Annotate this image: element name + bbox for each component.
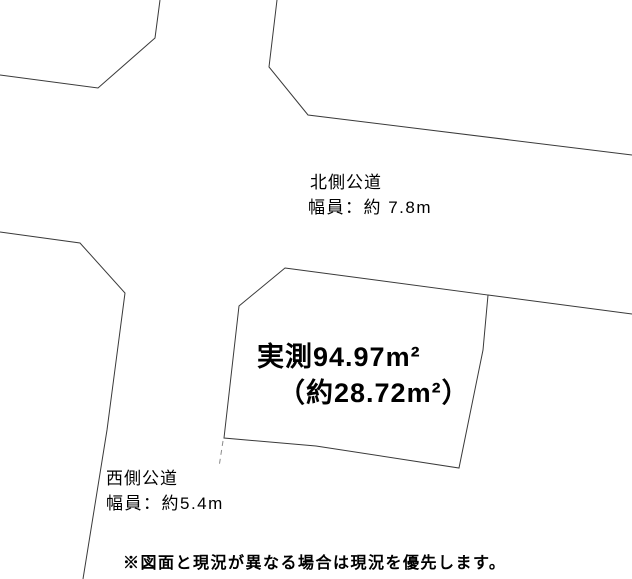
plot-diagram-root: 北側公道 幅員：約 7.8m 実測94.97m² （約28.72m²） 西側公道… xyxy=(0,0,632,579)
disclaimer-note: ※図面と現況が異なる場合は現況を優先します。 xyxy=(123,549,506,573)
parcel-measured-area: 実測94.97m² xyxy=(257,339,470,375)
north-road-label: 北側公道 幅員：約 7.8m xyxy=(308,170,432,220)
parcel-area-label: 実測94.97m² （約28.72m²） xyxy=(257,339,470,411)
plot-lines-svg xyxy=(0,0,632,579)
west-road-label: 西側公道 幅員：約5.4m xyxy=(106,466,224,516)
northeast-block-boundary xyxy=(269,0,632,155)
north-road-width: 幅員：約 7.8m xyxy=(308,195,432,220)
north-road-south-edge xyxy=(488,295,632,314)
north-road-name: 北側公道 xyxy=(310,170,432,195)
northwest-block-boundary xyxy=(0,0,160,88)
west-road-width: 幅員：約5.4m xyxy=(106,491,224,516)
west-road-east-edge-extension xyxy=(219,441,223,467)
southwest-block-boundary xyxy=(0,232,125,579)
parcel-approx-area: （約28.72m²） xyxy=(278,375,470,411)
west-road-name: 西側公道 xyxy=(106,466,224,491)
